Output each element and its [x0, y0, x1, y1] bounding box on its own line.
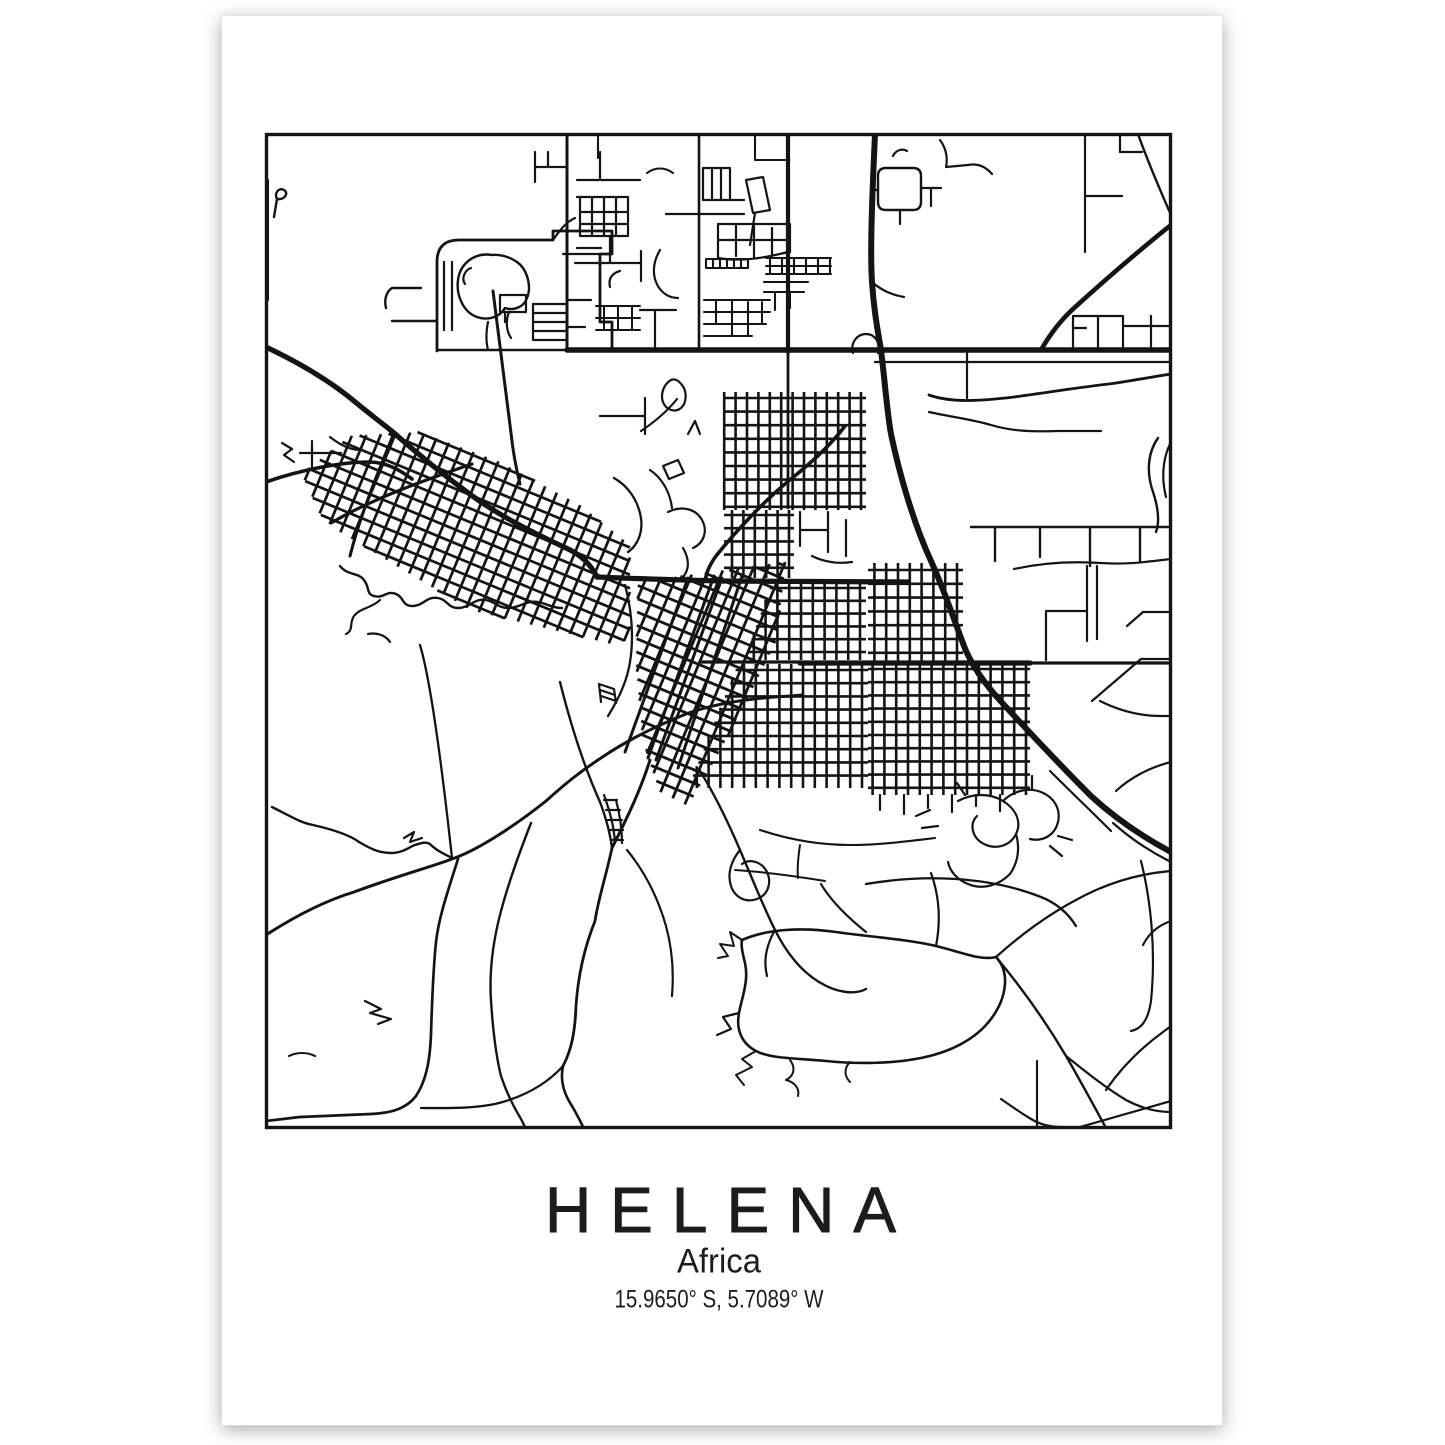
svg-text:Africa: Africa [677, 1243, 761, 1281]
svg-text:HELENA: HELENA [545, 1174, 915, 1246]
svg-text:15.9650° S, 5.7089° W: 15.9650° S, 5.7089° W [615, 1286, 824, 1314]
